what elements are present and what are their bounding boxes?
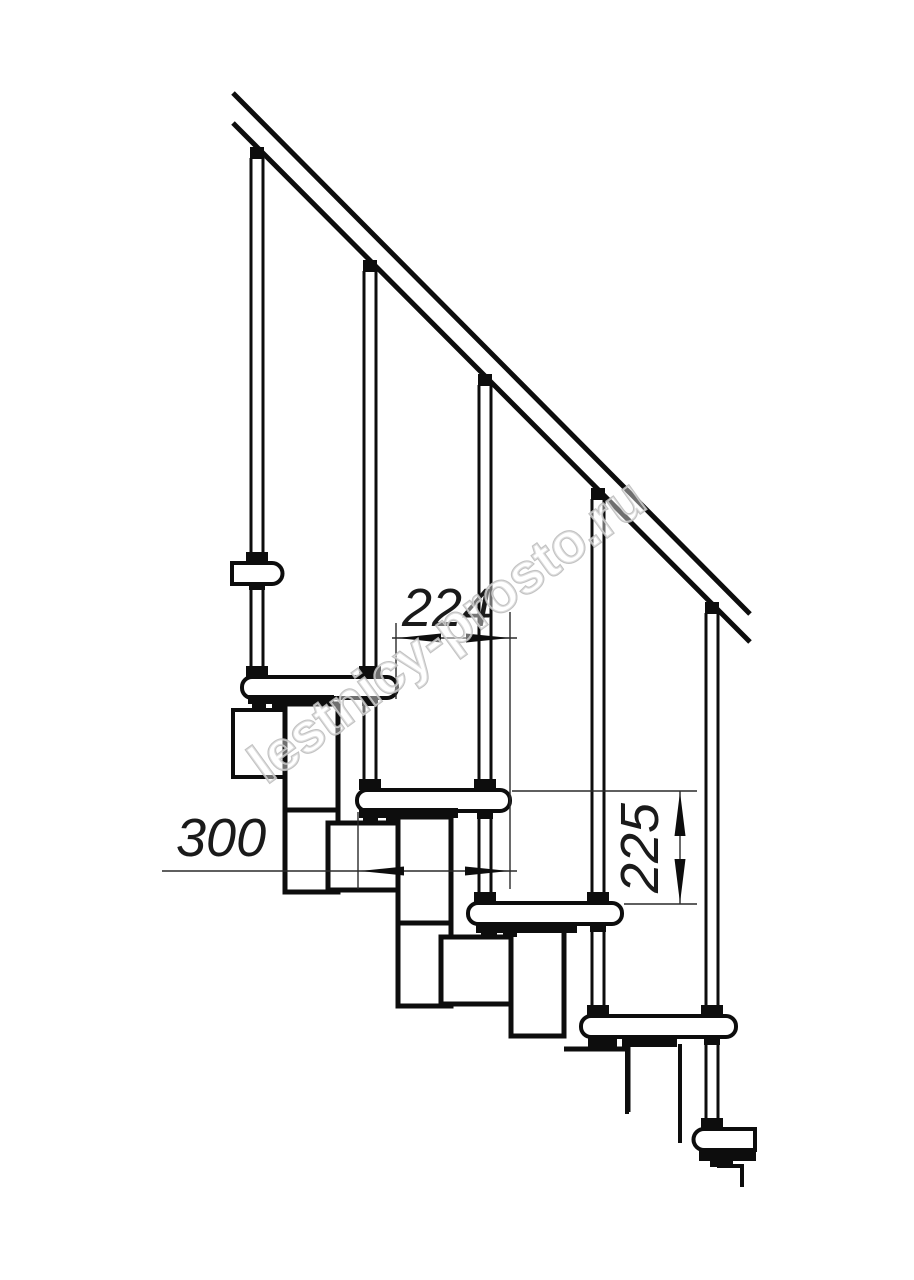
arrow-down xyxy=(675,859,686,903)
plate-step-3 xyxy=(476,923,577,933)
staircase-technical-drawing: 224 300 225 lestnicy-prosto.ru xyxy=(0,0,914,1280)
arrow-right xyxy=(465,867,509,876)
module-column-3 xyxy=(511,930,564,1036)
plate-step-5 xyxy=(699,1150,756,1161)
dimension-label-300: 300 xyxy=(176,808,266,868)
baluster-1-cap xyxy=(250,147,264,159)
step-5-cut xyxy=(694,1129,756,1150)
step-3 xyxy=(468,903,622,924)
baluster-3-cap xyxy=(478,374,492,386)
baluster-1 xyxy=(251,158,263,677)
baluster-5 xyxy=(706,613,718,1129)
upper-bracket-cut xyxy=(232,563,283,584)
module-box-1 xyxy=(328,823,405,890)
module-column-4-cut xyxy=(627,1044,680,1143)
plate-step-2 xyxy=(359,808,458,818)
module-box-3-cut xyxy=(564,1049,628,1112)
module-under-step5-cut xyxy=(717,1166,742,1187)
step-2 xyxy=(357,790,510,811)
baluster-5-cap xyxy=(705,602,719,614)
module-box-2 xyxy=(441,937,518,1004)
plate-step-4-left xyxy=(588,1038,617,1047)
arrow-up xyxy=(675,792,686,836)
baluster-2-cap xyxy=(363,260,377,272)
dimension-label-225: 225 xyxy=(610,802,670,894)
baluster-4 xyxy=(592,499,604,1016)
step-4 xyxy=(581,1016,736,1037)
drawing-canvas: 224 300 225 lestnicy-prosto.ru xyxy=(0,0,914,1280)
plate-step-4 xyxy=(622,1038,677,1047)
